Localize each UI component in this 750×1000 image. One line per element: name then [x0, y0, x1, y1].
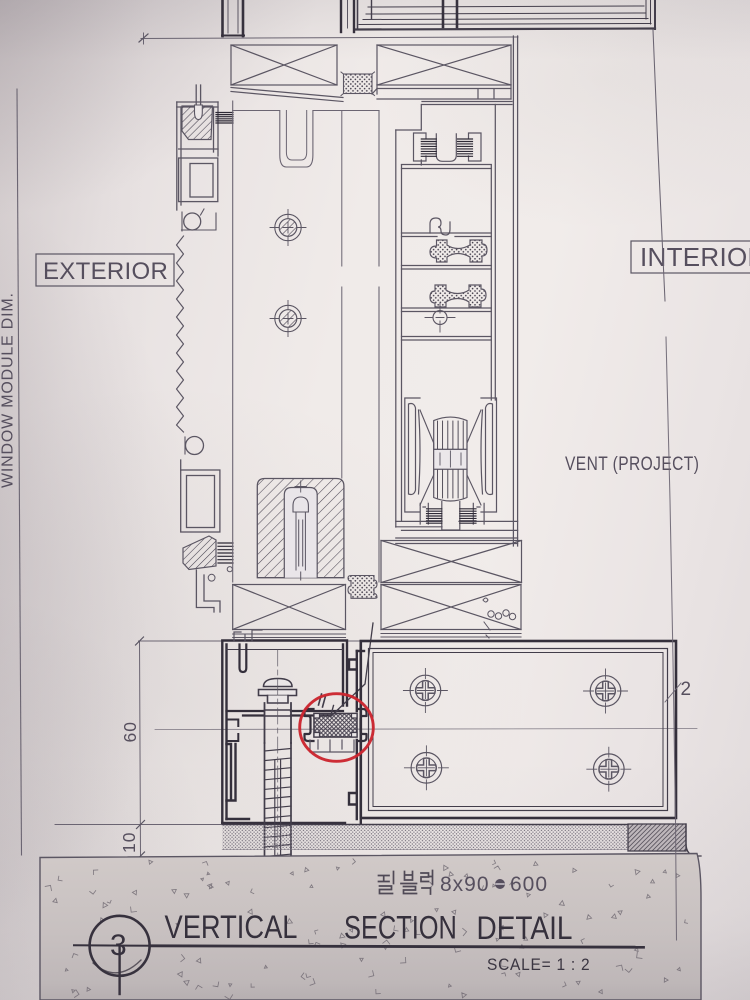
svg-text:60: 60: [120, 721, 140, 742]
svg-text:2: 2: [681, 679, 692, 700]
svg-text:DETAIL: DETAIL: [477, 911, 573, 946]
svg-text:VERTICAL: VERTICAL: [165, 910, 298, 946]
svg-text:EXTERIOR: EXTERIOR: [43, 258, 168, 285]
svg-text:SCALE= 1 : 2: SCALE= 1 : 2: [487, 957, 590, 975]
svg-text:10: 10: [119, 832, 139, 853]
svg-text:3: 3: [110, 929, 127, 962]
svg-text:SECTION: SECTION: [344, 911, 457, 947]
svg-text:INTERIOR: INTERIOR: [640, 242, 750, 272]
svg-text:WINDOW MODULE DIM.: WINDOW MODULE DIM.: [0, 292, 17, 488]
svg-text:VENT (PROJECT): VENT (PROJECT): [565, 453, 699, 475]
svg-text:600: 600: [510, 873, 548, 896]
svg-text:8x90: 8x90: [440, 873, 490, 896]
